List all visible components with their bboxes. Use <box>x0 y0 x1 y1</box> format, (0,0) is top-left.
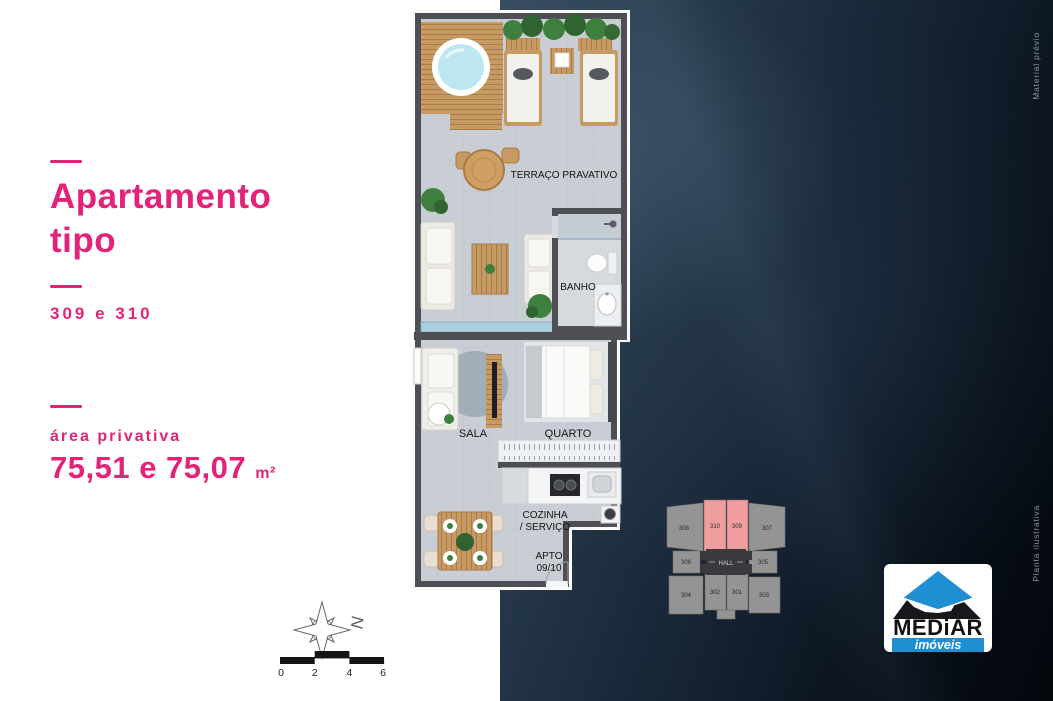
keyplan-label: 301 <box>732 590 743 596</box>
scale-tick: 2 <box>312 667 318 679</box>
scale-tick: 6 <box>380 667 386 679</box>
keyplan: 308 310 309 307 306 305 304 302 301 303 … <box>663 493 788 625</box>
keyplan-label: 305 <box>758 560 769 566</box>
wardrobe-wall <box>498 462 620 468</box>
bed <box>524 342 616 422</box>
keyplan-label: 310 <box>710 524 721 530</box>
label-servico: / SERVIÇO <box>520 522 571 533</box>
logo-brand-text: MEDiAR <box>893 615 983 640</box>
window-band <box>421 322 553 332</box>
wardrobe <box>498 440 620 462</box>
keyplan-label: 303 <box>759 593 770 599</box>
sun-lounger <box>580 50 618 126</box>
label-sala: SALA <box>459 428 488 440</box>
page-title: Apartamento tipo <box>50 175 380 263</box>
brand-logo: MEDiAR imóveis <box>881 561 995 655</box>
side-table <box>550 48 574 74</box>
area-unit: m² <box>255 465 276 482</box>
kitchen-cabinet <box>502 468 528 504</box>
label-apto: APTO <box>535 551 562 562</box>
area-value: 75,51 e 75,07 m² <box>50 450 276 486</box>
info-panel: Apartamento tipo 309 e 310 <box>50 160 380 324</box>
keyplan-label: 306 <box>681 560 692 566</box>
bathroom-sink <box>594 284 621 326</box>
tv-stand <box>486 354 502 428</box>
title-line2: tipo <box>50 221 116 260</box>
scale-tick: 4 <box>346 667 352 679</box>
outdoor-sofa-left <box>421 222 455 310</box>
logo-tagline-text: imóveis <box>915 638 962 652</box>
floorplan: BANHO SALA QUARTO <box>412 10 630 590</box>
unit-numbers: 309 e 310 <box>50 304 380 324</box>
sun-lounger <box>504 50 542 126</box>
washer <box>601 506 620 523</box>
compass-icon <box>294 602 350 658</box>
cooktop <box>550 474 580 496</box>
note-material-previo: Material prévio <box>1031 32 1041 100</box>
keyplan-label: 307 <box>762 526 773 532</box>
label-terraco: TERRAÇO PRAVATIVO <box>511 170 618 181</box>
wood-deck-step <box>450 114 502 130</box>
dividing-wall <box>414 332 627 340</box>
keyplan-label: 308 <box>679 526 690 532</box>
label-quarto: QUARTO <box>545 428 592 440</box>
note-planta-ilustrativa: Planta ilustrativa <box>1031 505 1041 582</box>
compass-scale: N 0 2 4 6 <box>272 596 392 688</box>
label-banho: BANHO <box>560 282 596 293</box>
toilet <box>587 252 617 274</box>
keyplan-bottom-tab <box>717 610 735 619</box>
title-line1: Apartamento <box>50 177 271 216</box>
keyplan-label: 304 <box>681 593 692 599</box>
area-number: 75,51 e 75,07 <box>50 450 246 485</box>
accent-dash <box>50 285 82 288</box>
kitchen-sink <box>588 472 616 497</box>
planter-box <box>506 38 540 51</box>
keyplan-hall-label: HALL <box>718 561 734 567</box>
scale-bar <box>280 651 384 664</box>
compass-north-label: N <box>347 615 367 630</box>
accent-dash <box>50 405 82 408</box>
coffee-table <box>472 244 508 294</box>
outdoor-sofa-right <box>524 234 554 304</box>
scale-tick: 0 <box>278 667 284 679</box>
accent-dash <box>50 160 82 163</box>
area-label: área privativa <box>50 428 276 446</box>
bathroom: BANHO <box>552 208 627 332</box>
keyplan-label: 309 <box>732 524 743 530</box>
keyplan-label: 302 <box>710 590 721 596</box>
window-left <box>414 348 421 384</box>
bathroom-door-opening <box>552 216 558 238</box>
area-block: área privativa 75,51 e 75,07 m² <box>50 428 276 486</box>
label-apto-num: 09/10 <box>536 563 561 574</box>
label-cozinha: COZINHA <box>523 510 568 521</box>
